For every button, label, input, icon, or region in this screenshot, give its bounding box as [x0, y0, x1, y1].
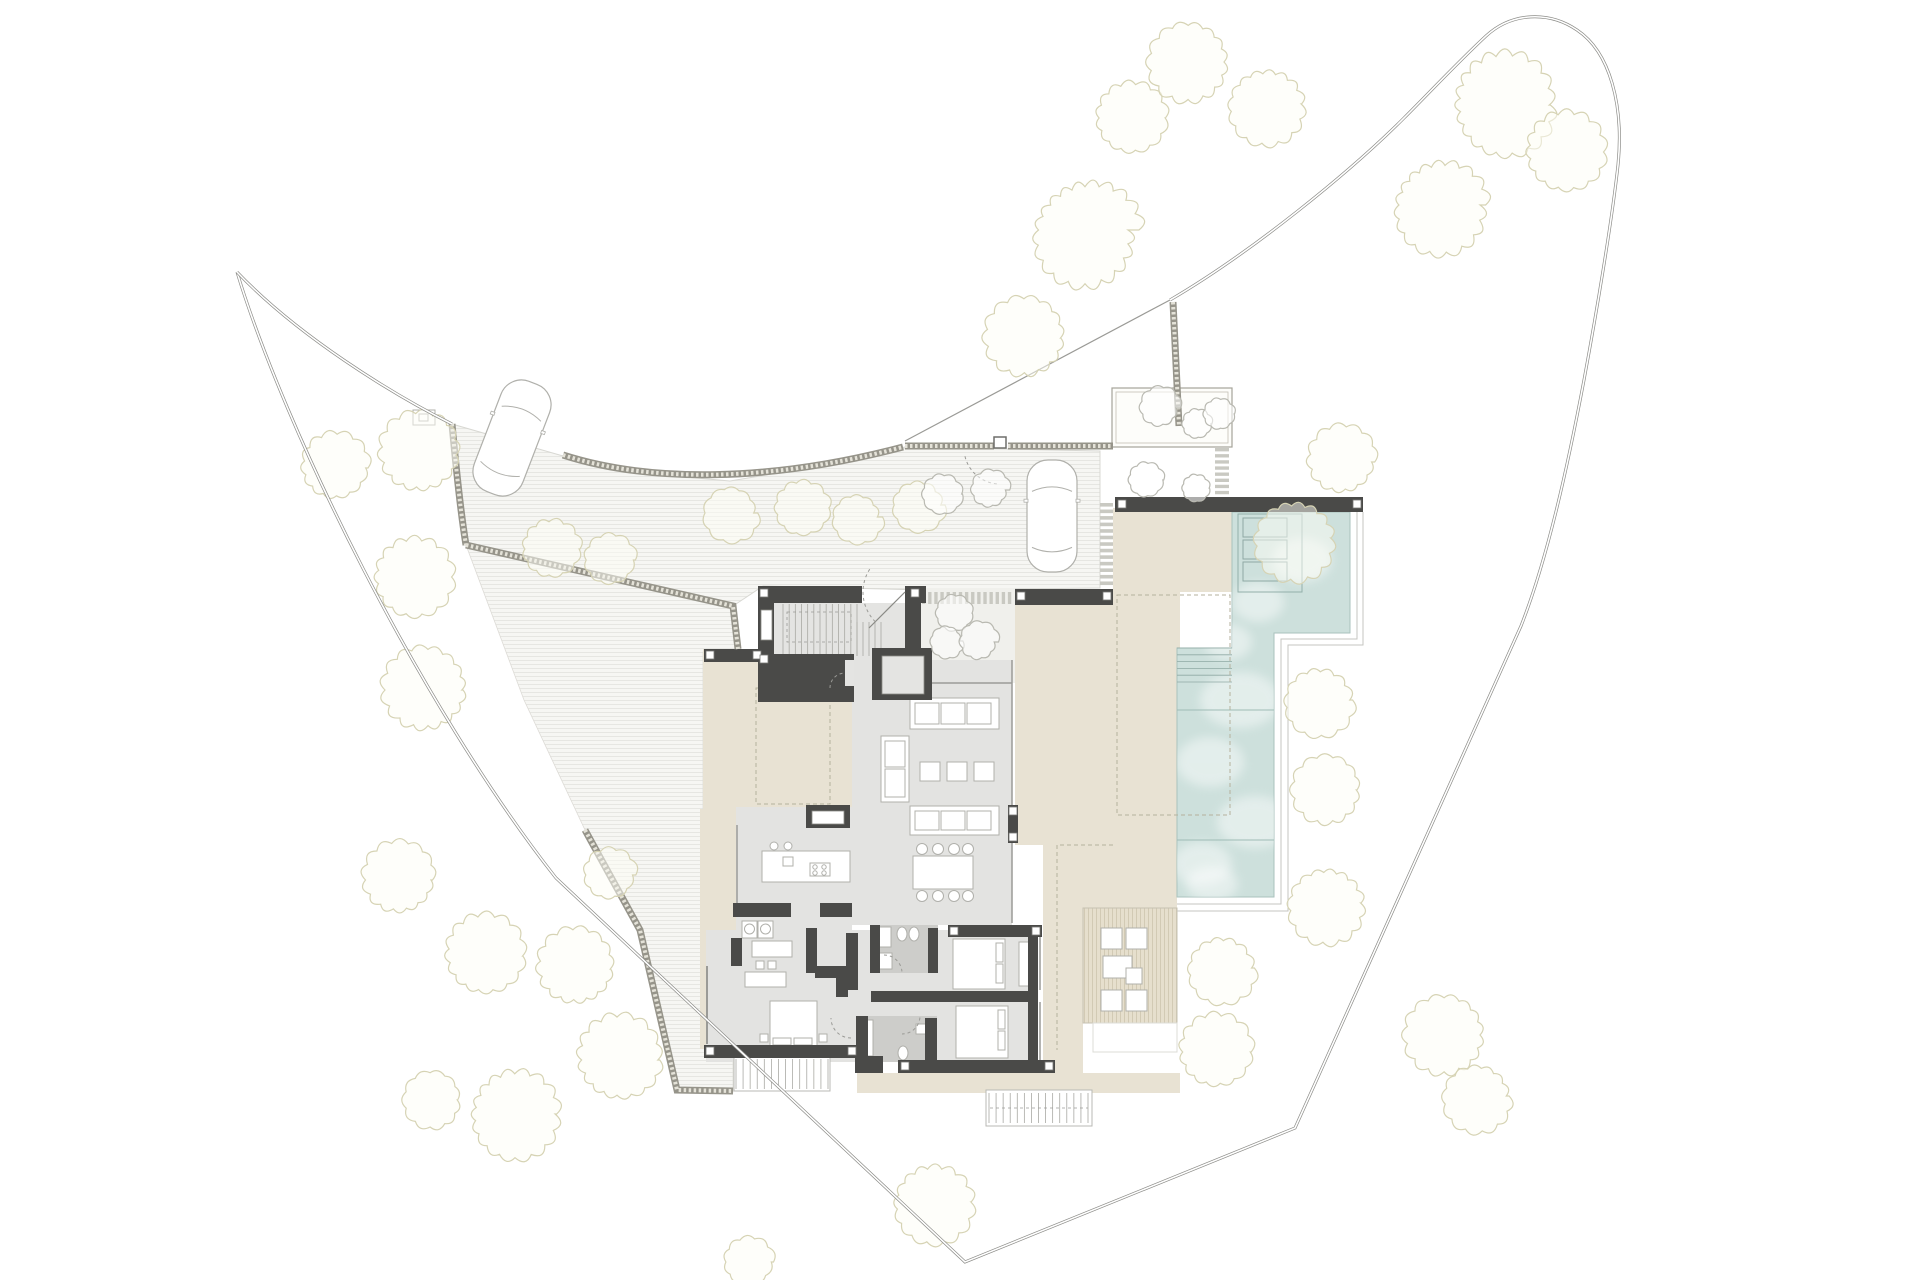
pool-terrace-upper [1113, 508, 1232, 592]
wall [856, 1016, 868, 1062]
wall-cap [760, 589, 768, 597]
burner [813, 871, 817, 875]
burner [813, 865, 817, 869]
wall [820, 903, 852, 917]
wall-cap [1017, 592, 1025, 600]
burner [822, 871, 826, 875]
tree [374, 535, 456, 618]
wall [731, 938, 742, 966]
coffee-table [947, 762, 967, 781]
washer-door [745, 924, 755, 934]
coffee-table [974, 762, 994, 781]
east-terrace [1015, 592, 1180, 845]
wall-cap [1009, 807, 1017, 815]
closet-shelf [1019, 942, 1029, 986]
dining-chair [949, 844, 960, 855]
deck-chair [1101, 928, 1122, 949]
water-highlight [1200, 672, 1280, 728]
car-parked-court [1024, 460, 1080, 572]
tree [522, 518, 582, 577]
terrace-strip-east-of-wing [1043, 920, 1083, 1073]
wall [870, 925, 880, 973]
water-highlight [1232, 582, 1284, 622]
wall [733, 903, 791, 917]
dining-chair [933, 891, 944, 902]
chaise-cushion [885, 741, 905, 767]
closet-shelf [752, 941, 792, 957]
kitchen-sink [783, 857, 793, 866]
dining-chair [917, 891, 928, 902]
wall [758, 586, 862, 603]
west-steps-border [734, 1057, 830, 1091]
vanity-sink [756, 961, 764, 969]
pillow [996, 964, 1003, 983]
dining-chair [933, 844, 944, 855]
wall [905, 603, 921, 652]
deck-chair [1126, 990, 1147, 1011]
sofa-cushion [967, 703, 991, 724]
nightstand [819, 1034, 827, 1042]
water-highlight [1176, 737, 1244, 787]
coffee-table [920, 762, 940, 781]
site-plan-svg [0, 0, 1920, 1280]
wall [898, 1060, 1055, 1073]
wall-cap [1118, 500, 1126, 508]
sofa-cushion [915, 811, 939, 830]
bar-stool [770, 842, 778, 850]
wall-cap [950, 927, 958, 935]
deck-chair [1101, 990, 1122, 1011]
vanity-sink [768, 961, 776, 969]
wall-wc [758, 654, 854, 702]
kitchen-island [762, 851, 850, 882]
wall [815, 966, 848, 978]
pillow [996, 943, 1003, 962]
pillow [794, 1038, 812, 1045]
burner [822, 865, 826, 869]
sofa-cushion [941, 811, 965, 830]
wall [704, 1045, 858, 1058]
wall-cap [1009, 833, 1017, 841]
dryer-door [761, 924, 771, 934]
toilet [897, 927, 907, 941]
sofa-cushion [941, 703, 965, 724]
wall [846, 933, 858, 990]
wall [1028, 1002, 1038, 1062]
wall-long [871, 991, 1038, 1002]
bar-stool [784, 842, 792, 850]
wall [1028, 932, 1038, 992]
dining-chair [963, 844, 974, 855]
kitchen-window-inset [812, 811, 844, 824]
wall-cap [901, 1062, 909, 1070]
dining-chair [917, 844, 928, 855]
sofa-cushion [967, 811, 991, 830]
bidet [909, 927, 919, 941]
wall-pool-back [1115, 497, 1363, 512]
toilet [898, 1046, 908, 1060]
wall [925, 1018, 937, 1062]
wall-cap [706, 651, 714, 659]
dining-table [913, 856, 973, 889]
pillow [998, 1010, 1005, 1029]
nightstand [760, 1034, 768, 1042]
wall-cap [760, 655, 768, 663]
elevator-inset [882, 656, 924, 694]
wall-cap [1032, 927, 1040, 935]
dining-chair [963, 891, 974, 902]
dining-chair [949, 891, 960, 902]
wall [948, 925, 1042, 937]
wall-cap [1103, 592, 1111, 600]
bench [745, 972, 786, 987]
sofa-cushion [915, 703, 939, 724]
wall-cap [1353, 500, 1361, 508]
wall [928, 928, 938, 973]
wall-cap [1045, 1062, 1053, 1070]
wall-cap [848, 1047, 856, 1055]
deck-chair [1126, 928, 1147, 949]
gate-post [994, 437, 1006, 448]
chaise-cushion [885, 769, 905, 797]
wc-door-gap [845, 660, 854, 686]
deck-side-table [1126, 968, 1142, 984]
wall-cap [706, 1047, 714, 1055]
stair-window-inset [761, 610, 772, 640]
wall-freestanding [1015, 589, 1113, 605]
site-plan-canvas [0, 0, 1920, 1280]
water-highlight [1186, 866, 1238, 902]
pillow [773, 1038, 791, 1045]
pillow [998, 1031, 1005, 1050]
wall-cap [911, 589, 919, 597]
deck-path [1093, 1023, 1177, 1052]
